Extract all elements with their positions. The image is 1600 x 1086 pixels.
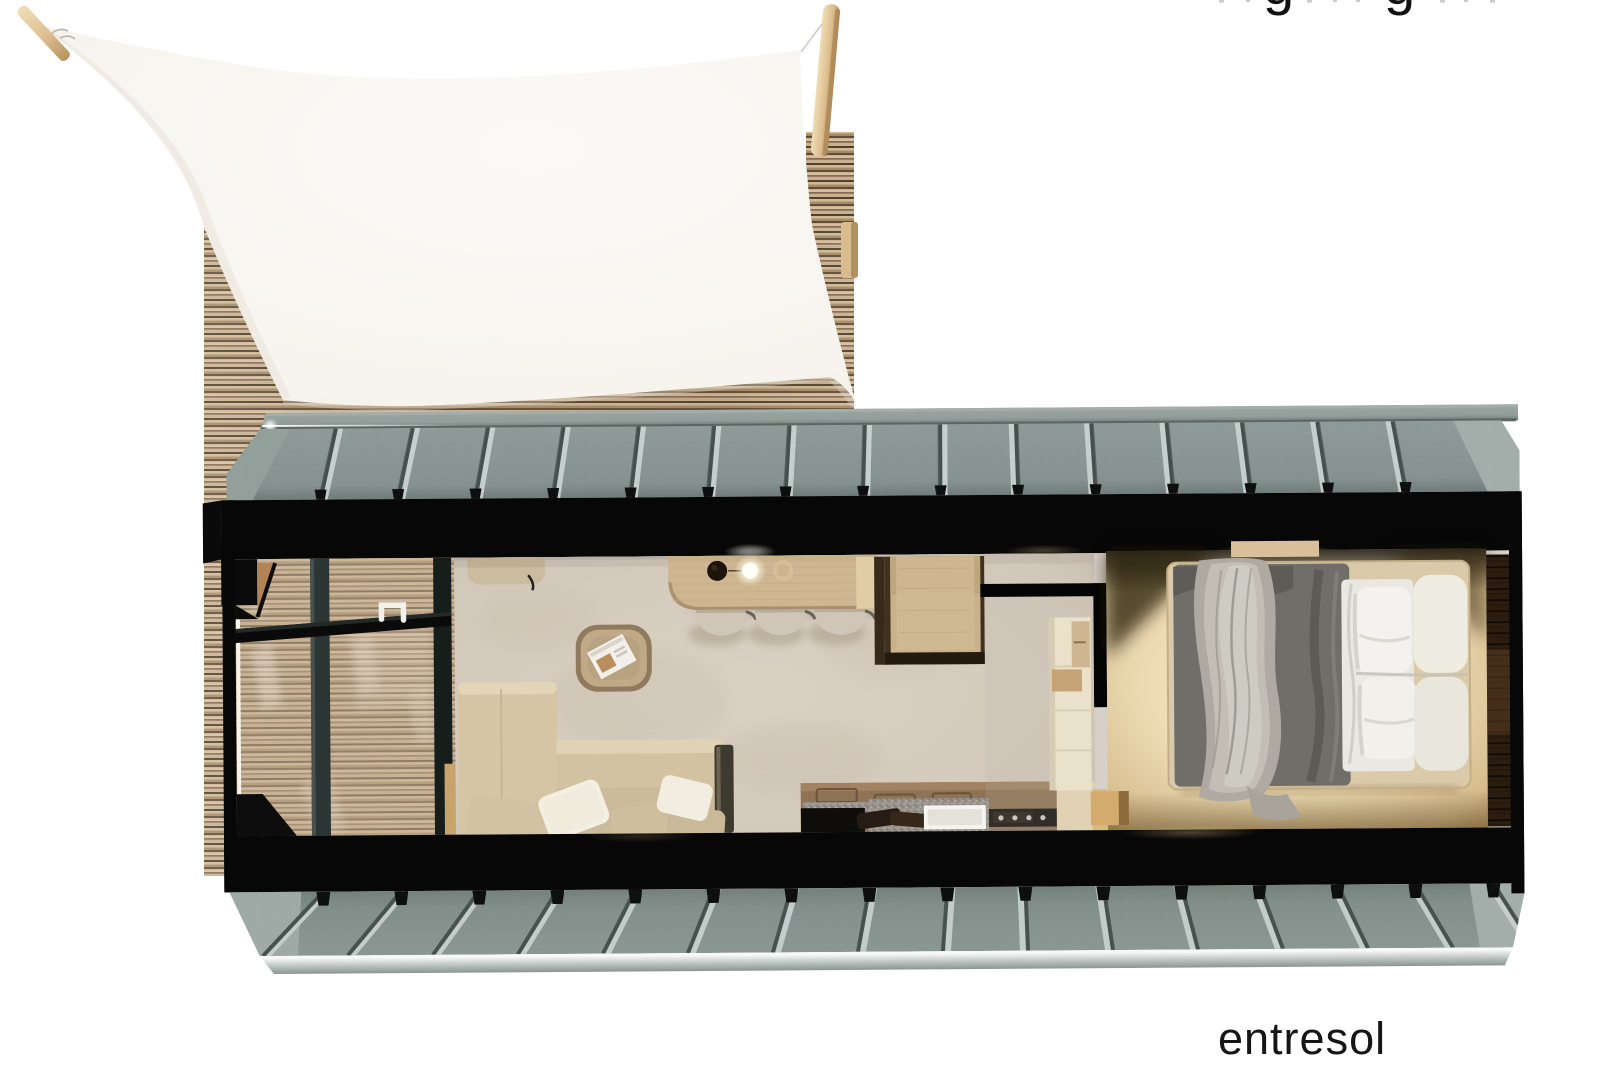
- svg-text:g: g: [1384, 0, 1415, 16]
- svg-text:g: g: [1263, 0, 1294, 16]
- svg-text:entresol: entresol: [1218, 1013, 1386, 1064]
